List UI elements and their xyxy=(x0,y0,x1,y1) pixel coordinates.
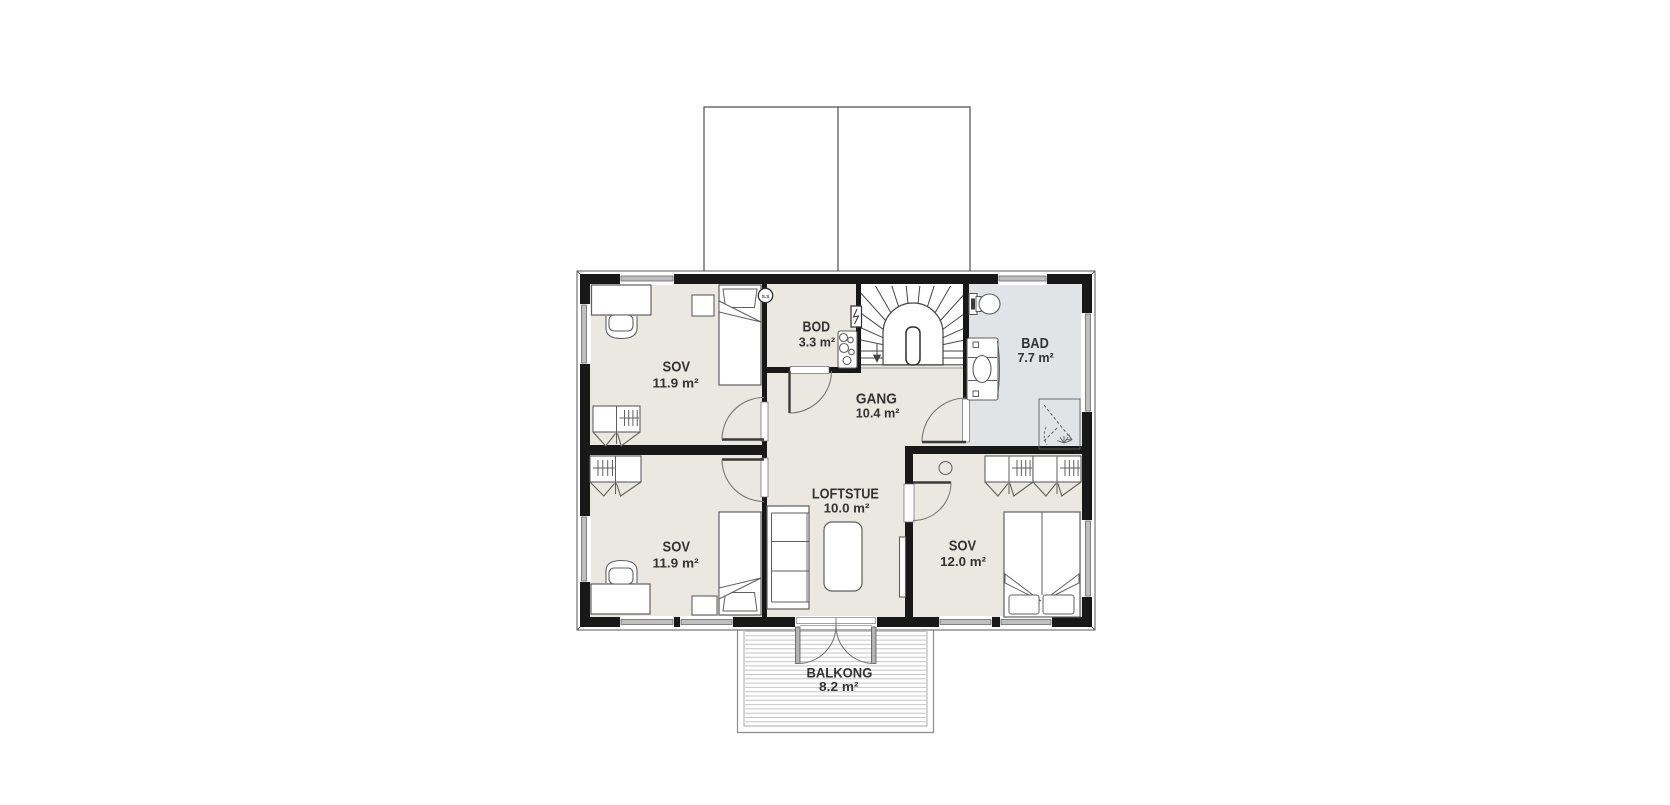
svg-text:SOV: SOV xyxy=(663,540,691,556)
svg-text:10.4 m²: 10.4 m² xyxy=(856,406,900,421)
svg-text:11.9 m²: 11.9 m² xyxy=(653,376,700,391)
svg-text:8.2 m²: 8.2 m² xyxy=(819,679,859,694)
svg-text:3.3 m²: 3.3 m² xyxy=(799,335,836,350)
svg-text:SOV: SOV xyxy=(663,360,691,376)
svg-text:7.7 m²: 7.7 m² xyxy=(1017,350,1054,365)
svg-text:S.S: S.S xyxy=(762,294,771,300)
svg-text:SOV: SOV xyxy=(949,539,977,555)
svg-text:11.9 m²: 11.9 m² xyxy=(653,556,700,571)
svg-text:10.0 m²: 10.0 m² xyxy=(824,501,870,516)
svg-text:BOD: BOD xyxy=(803,320,831,336)
svg-text:12.0 m²: 12.0 m² xyxy=(940,554,987,569)
